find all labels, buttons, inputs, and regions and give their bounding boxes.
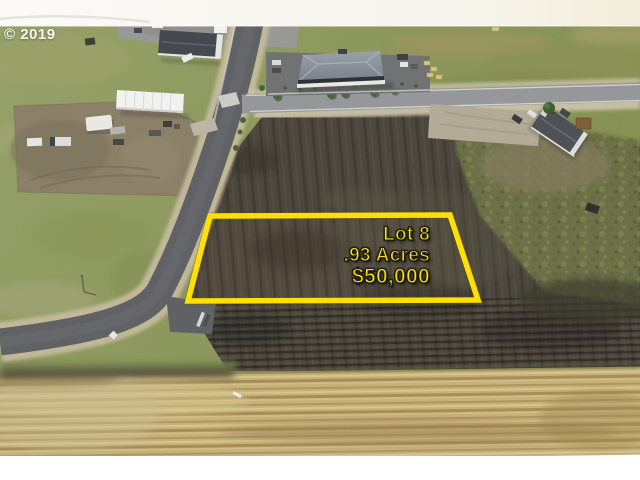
bottom-margin xyxy=(0,456,640,480)
listing-photo: © 2019 Lot 8 .93 Acres $50,000 xyxy=(0,0,640,480)
lot-price: $50,000 xyxy=(343,266,430,288)
lot-acreage: .93 Acres xyxy=(343,245,430,266)
listing-info: Lot 8 .93 Acres $50,000 xyxy=(343,224,430,288)
photo-grain xyxy=(0,20,640,460)
copyright-watermark: © 2019 xyxy=(4,26,56,43)
aerial-scene xyxy=(0,0,640,480)
sky-band xyxy=(0,0,640,27)
lot-number: Lot 8 xyxy=(343,224,430,245)
